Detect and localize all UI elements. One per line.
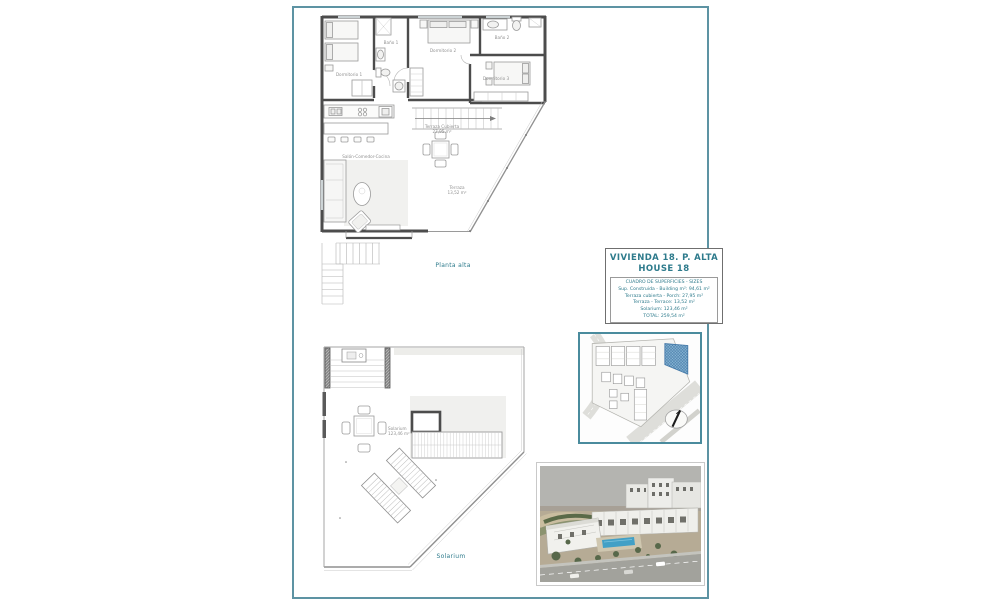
bedroom-1-label: Dormitorio 1 — [336, 72, 363, 77]
bedroom-2-furniture — [410, 20, 478, 96]
render-image — [540, 466, 701, 582]
sizes-row-building: Sup. Construida - Building m²: 94,61 m² — [612, 287, 716, 294]
bath-2-fixtures — [483, 17, 541, 31]
exterior-stair — [322, 243, 380, 304]
tv-bench — [366, 225, 400, 230]
solarium-plan-caption: Solarium — [396, 553, 506, 560]
solarium-labels: Solarium 123,46 m² — [388, 426, 410, 436]
north-arrow-icon — [665, 410, 687, 428]
title-line-1: VIVIENDA 18. P. ALTA — [606, 253, 722, 263]
site-plan — [578, 332, 702, 444]
bedroom-1-furniture — [325, 21, 372, 96]
pergola-counter — [412, 432, 502, 458]
mid-terrace-row — [592, 508, 698, 536]
sofa — [324, 160, 346, 222]
bath-1-fixtures — [376, 18, 405, 92]
sun-loungers — [361, 448, 435, 523]
solarium-outline — [324, 347, 527, 571]
roof-shade — [394, 348, 524, 355]
living-label: Salón-Comedor-Cocina — [342, 154, 390, 159]
bath-2-label: Baño 2 — [495, 35, 510, 40]
bedroom-3-furniture — [474, 62, 530, 101]
render-photo — [536, 462, 705, 586]
upper-plan-caption: Planta alta — [396, 262, 510, 269]
living-room-furniture — [324, 160, 408, 233]
left-wall-segments — [323, 392, 327, 438]
terrace-area: 13,52 m² — [447, 190, 466, 195]
solarium-plan: Solarium 123,46 m² — [316, 340, 532, 580]
title-block: VIVIENDA 18. P. ALTA HOUSE 18 CUADRO DE … — [605, 248, 723, 324]
stair-bulkhead — [412, 412, 440, 432]
solarium-dining-set — [342, 406, 386, 452]
sizes-table: CUADRO DE SUPERFICIES - SIZES Sup. Const… — [610, 277, 718, 323]
title-line-2: HOUSE 18 — [606, 264, 722, 274]
sizes-row-solarium: Solarium: 123,46 m² — [612, 307, 716, 314]
bedroom-3-label: Dormitorio 3 — [483, 76, 510, 81]
covered-terrace-area: 27,95 m² — [432, 129, 451, 134]
solarium-room-area: 123,46 m² — [388, 431, 410, 436]
dining-set — [423, 132, 458, 167]
plan-sheet: Dormitorio 1 Baño 1 Dormitorio 2 Baño 2 … — [0, 0, 1001, 606]
bedroom-2-label: Dormitorio 2 — [430, 48, 457, 53]
kitchen-furniture — [324, 105, 394, 142]
sizes-row-total: TOTAL: 259,54 m² — [612, 314, 716, 321]
stair-head — [325, 348, 390, 388]
bath-1-label: Baño 1 — [384, 40, 399, 45]
sizes-header: CUADRO DE SUPERFICIES - SIZES — [612, 280, 716, 287]
